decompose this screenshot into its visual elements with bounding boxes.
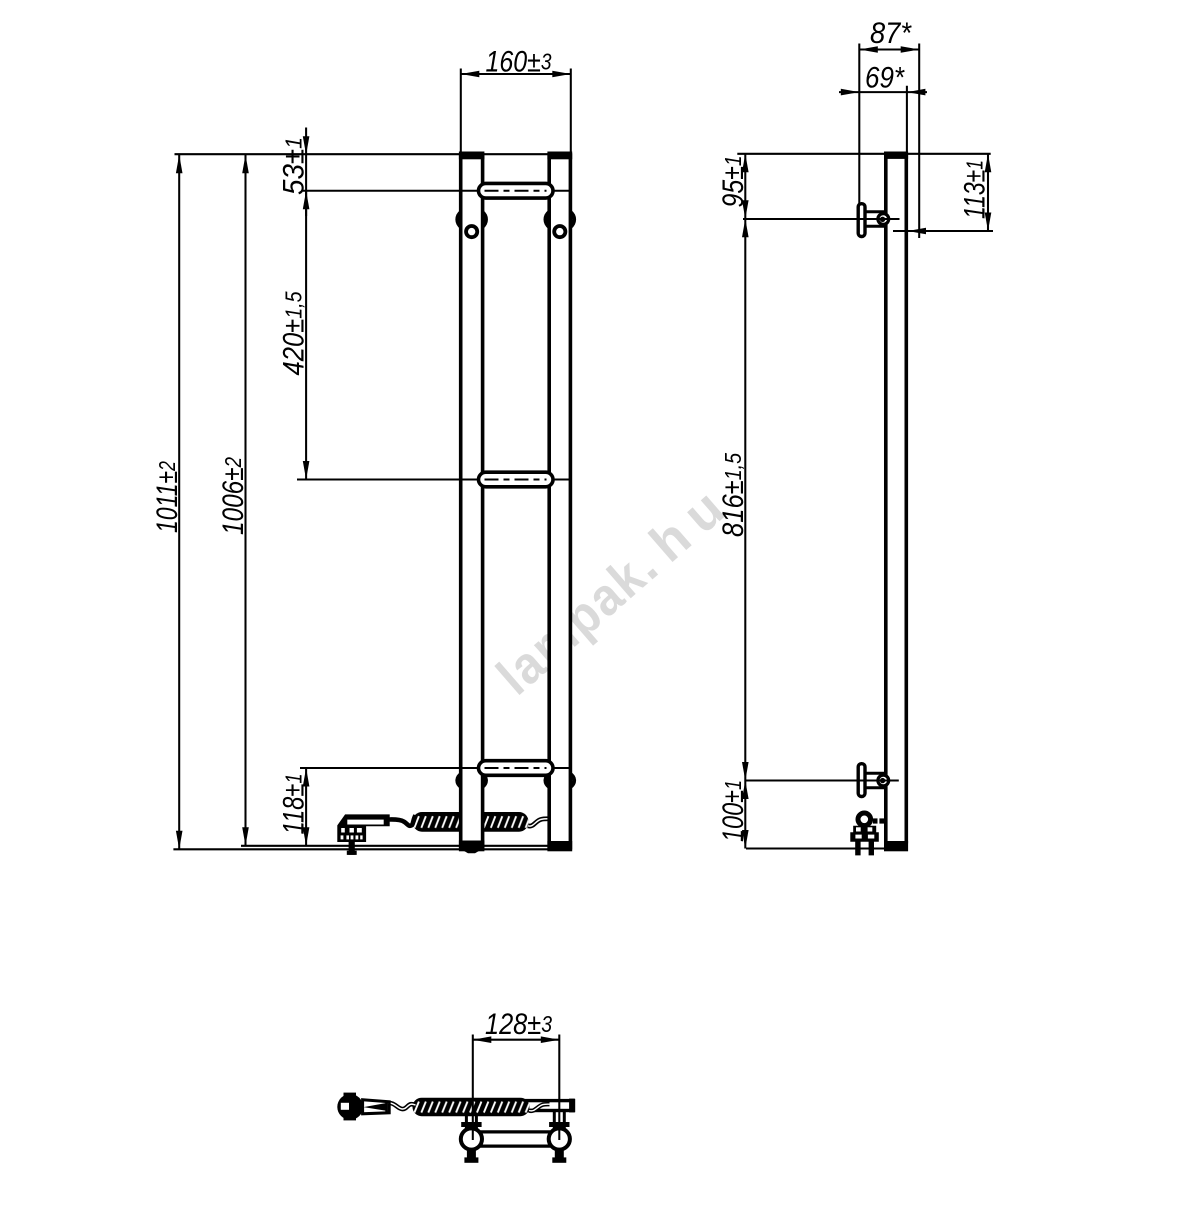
svg-text:53±1: 53±1 (278, 137, 311, 195)
svg-text:95±1: 95±1 (717, 156, 750, 208)
svg-text:1006±2: 1006±2 (217, 457, 250, 535)
svg-text:420±1,5: 420±1,5 (278, 291, 311, 375)
svg-text:160±3: 160±3 (486, 46, 552, 79)
svg-text:100±1: 100±1 (717, 780, 750, 842)
svg-text:816±1,5: 816±1,5 (717, 453, 750, 537)
svg-text:87*: 87* (870, 17, 912, 50)
svg-text:69*: 69* (865, 62, 905, 95)
svg-text:1011±2: 1011±2 (151, 461, 184, 533)
svg-text:118±1: 118±1 (278, 774, 311, 835)
svg-text:113±1: 113±1 (959, 160, 992, 219)
svg-text:128±3: 128±3 (485, 1008, 552, 1041)
